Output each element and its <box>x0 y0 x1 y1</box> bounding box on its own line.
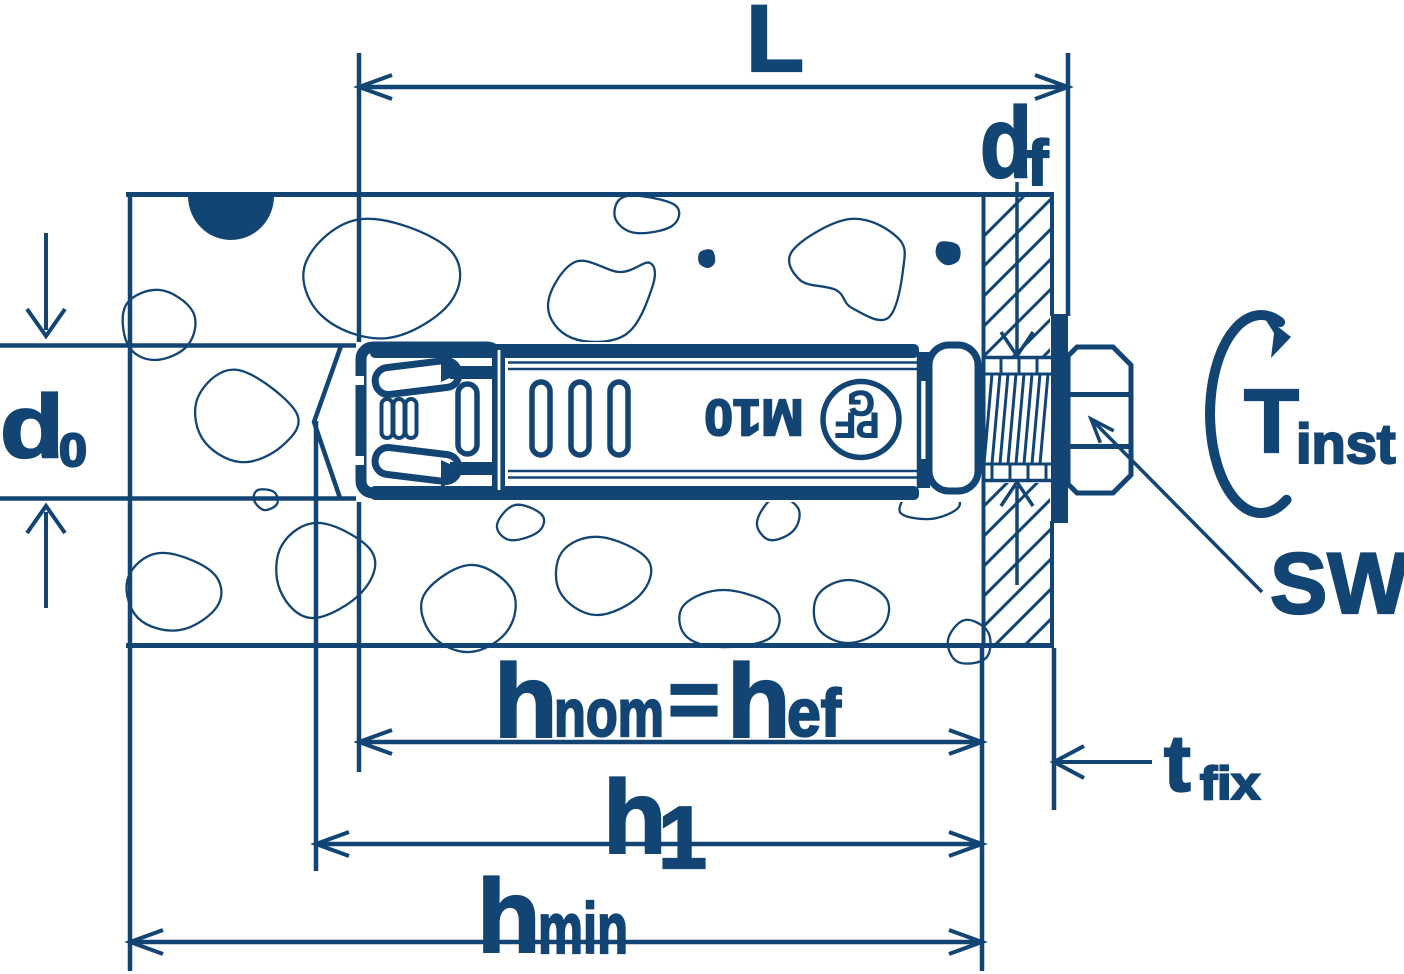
svg-text:h: h <box>477 859 541 974</box>
svg-text:h: h <box>727 644 791 760</box>
svg-text:M10: M10 <box>704 389 803 446</box>
svg-text:G: G <box>847 383 874 422</box>
svg-text:SW: SW <box>1270 536 1404 632</box>
svg-text:0: 0 <box>59 424 87 476</box>
svg-text:f: f <box>1027 127 1049 199</box>
svg-text:t: t <box>1164 719 1191 808</box>
svg-text:nom: nom <box>554 676 664 751</box>
svg-text:1: 1 <box>658 788 707 887</box>
svg-text:=: = <box>668 655 720 745</box>
svg-text:min: min <box>538 890 628 969</box>
svg-text:ef: ef <box>787 676 842 751</box>
svg-text:T: T <box>1244 372 1299 472</box>
svg-text:h: h <box>603 760 667 876</box>
svg-text:L: L <box>746 0 804 92</box>
svg-text:fix: fix <box>1200 757 1260 809</box>
svg-text:inst: inst <box>1296 412 1396 475</box>
svg-text:d: d <box>980 87 1032 199</box>
svg-text:h: h <box>494 644 558 760</box>
svg-text:d: d <box>0 376 64 476</box>
